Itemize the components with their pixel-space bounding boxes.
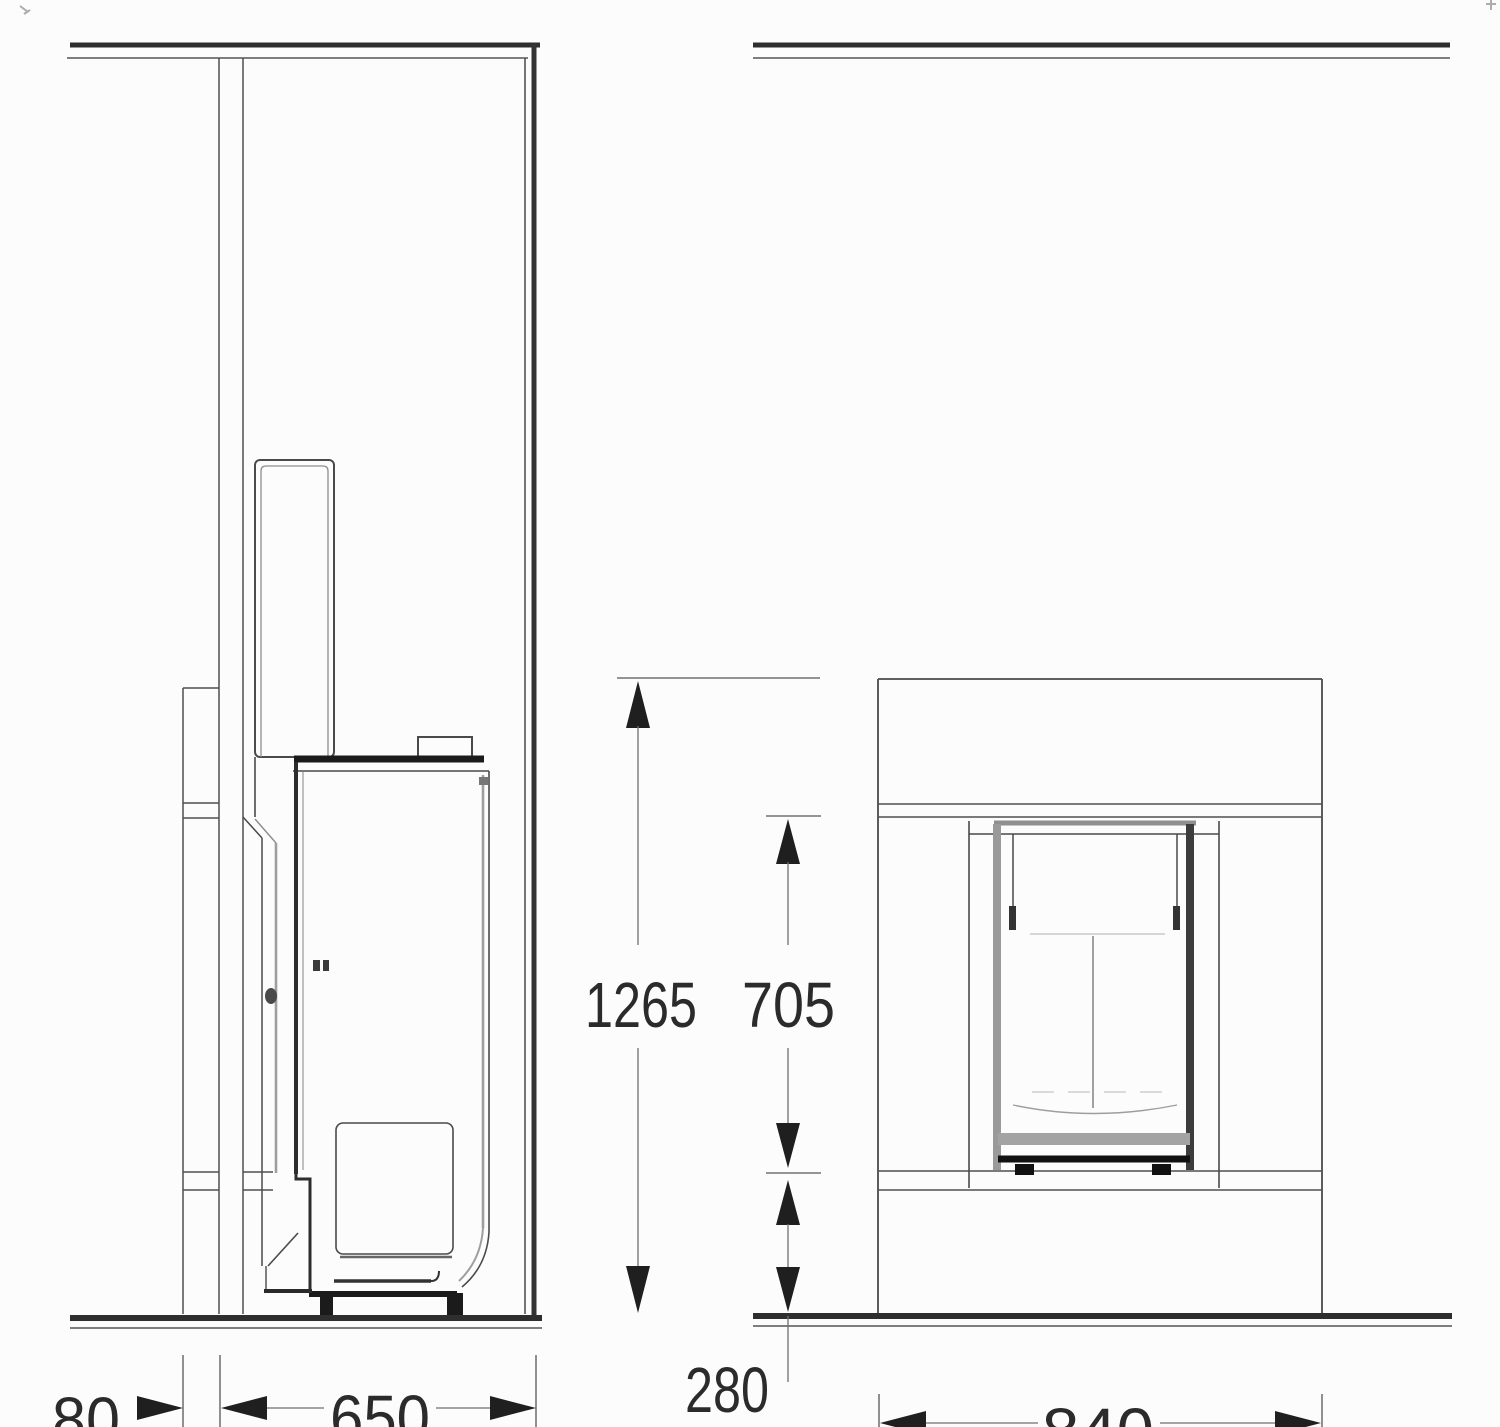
dim-label-280: 280 [685, 1354, 769, 1426]
technical-drawing-page: 1265 705 280 80 650 [0, 0, 1500, 1427]
scan-artifacts [20, 0, 1496, 14]
dim-label-1265: 1265 [585, 969, 697, 1041]
dimension-plinth-height: 280 [685, 1180, 800, 1426]
side-insulation-column [183, 688, 273, 1314]
fireplace-dimension-drawing: 1265 705 280 80 650 [0, 0, 1500, 1427]
dimension-front-width: 840 [879, 1394, 1322, 1427]
side-flue-collar [418, 737, 472, 758]
side-ceiling-line [67, 45, 540, 58]
dim-label-650: 650 [330, 1382, 430, 1427]
side-chase-lines [219, 58, 243, 1314]
dimension-side-bottom: 80 650 [52, 1355, 536, 1427]
side-view [67, 44, 542, 1328]
dim-label-840: 840 [1042, 1395, 1154, 1427]
side-firebox [293, 759, 489, 1294]
side-pedestal [264, 1123, 463, 1315]
front-hearth-lines [878, 1171, 1322, 1190]
front-surround-box [878, 679, 1322, 1314]
side-floor-line [70, 1318, 542, 1328]
front-ceiling-line [753, 45, 1450, 58]
front-floor-line [753, 1316, 1452, 1326]
dimension-opening-height: 705 [742, 816, 835, 1173]
dim-label-80: 80 [52, 1384, 120, 1427]
side-right-wall [525, 44, 534, 1318]
front-firebox-opening [969, 821, 1219, 1188]
side-glass-door [243, 817, 277, 1266]
front-view [753, 45, 1452, 1326]
front-lintel-lines [878, 804, 1322, 817]
dim-label-705: 705 [742, 969, 835, 1041]
